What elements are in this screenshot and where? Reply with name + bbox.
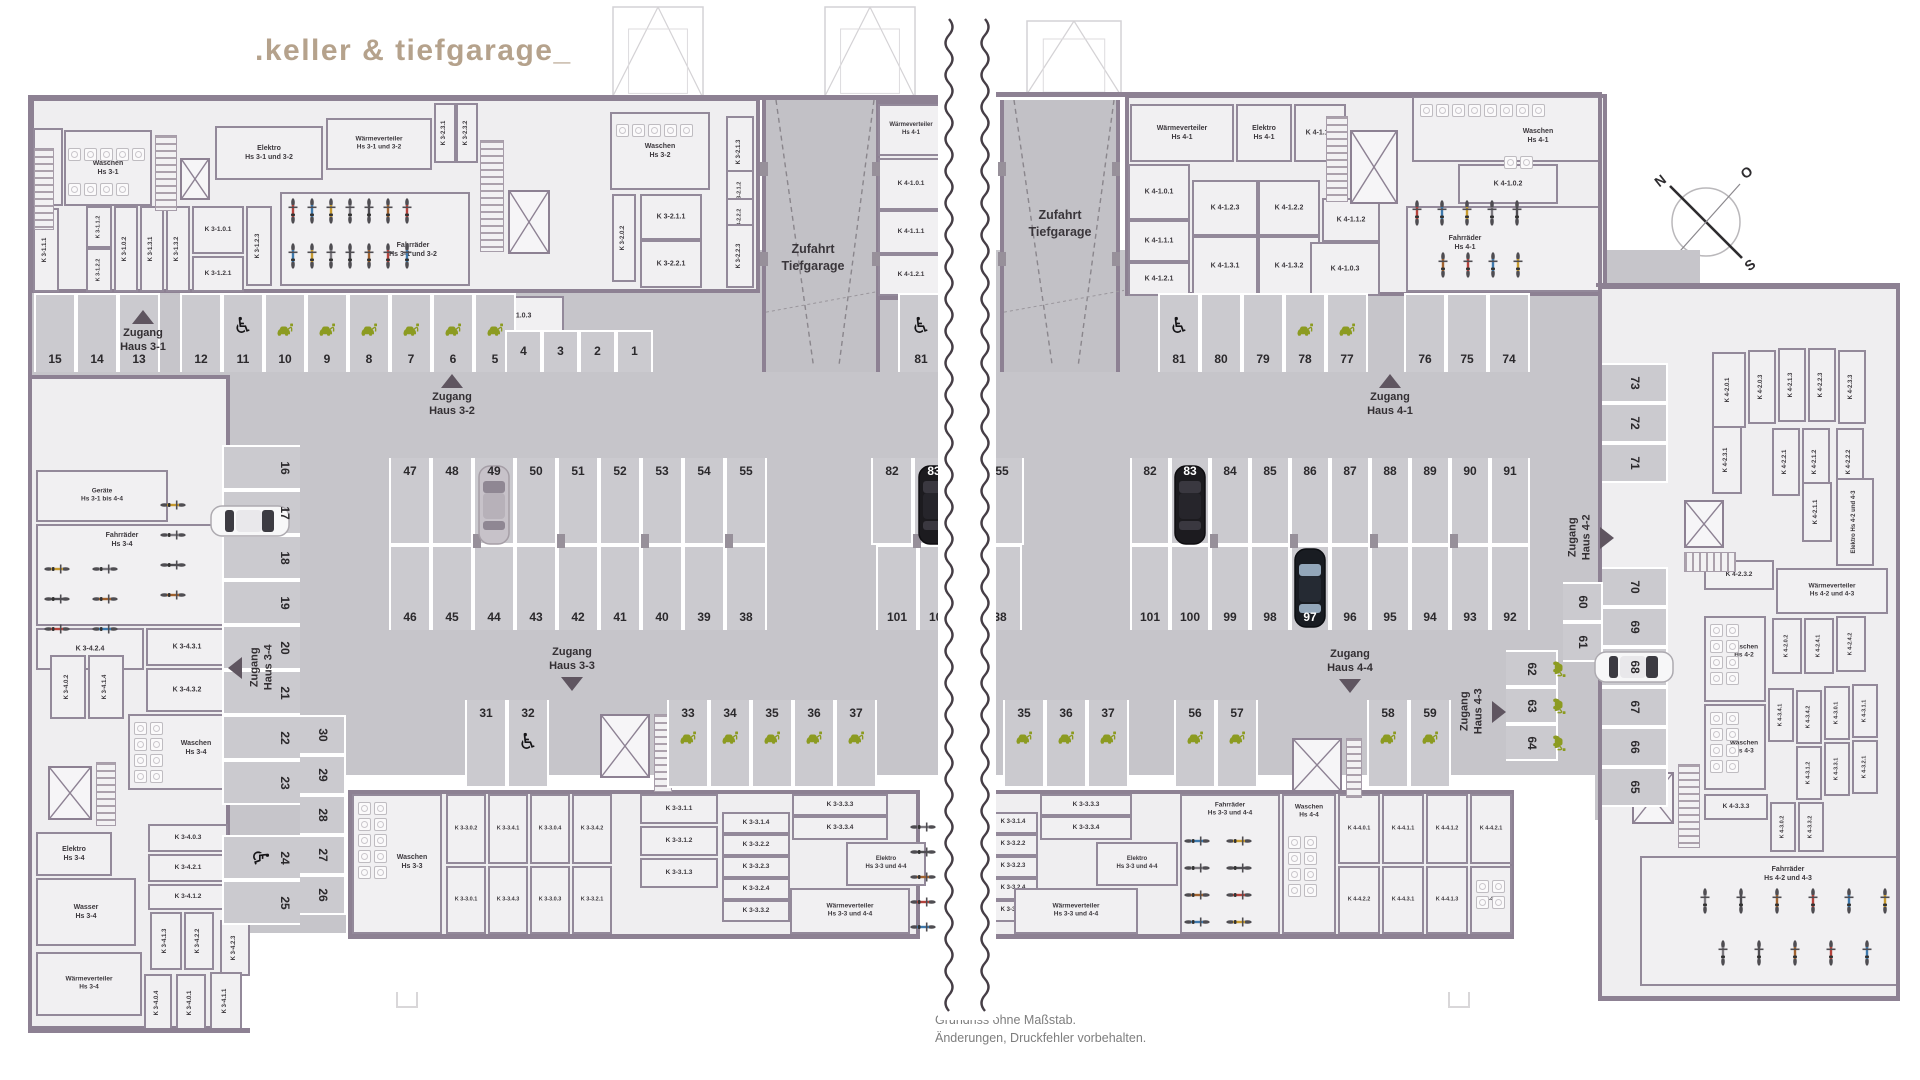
spot-number: 43 bbox=[529, 610, 542, 624]
room-label: K 4-2.0.1 bbox=[1725, 378, 1733, 403]
ev-car-shape bbox=[678, 731, 698, 747]
bicycle-shape bbox=[1226, 890, 1252, 900]
room-label: K 3-1.3.1 bbox=[148, 237, 156, 262]
room-label: K 3-4.2.2 bbox=[195, 929, 203, 954]
washing-machine-icon bbox=[116, 183, 129, 196]
bicycle-icon bbox=[1844, 888, 1854, 914]
spot-number: 52 bbox=[613, 464, 626, 478]
room-label: K 3-2.0.2 bbox=[620, 226, 628, 251]
room-label: K 4-1.0.1 bbox=[1145, 187, 1174, 196]
spot-number: 47 bbox=[403, 464, 416, 478]
spot-number: 28 bbox=[316, 808, 330, 821]
bicycle-shape bbox=[1488, 252, 1498, 278]
elevator-x-lines bbox=[50, 768, 90, 818]
washing-machine-icon bbox=[1726, 712, 1739, 725]
spot-number: 67 bbox=[1628, 700, 1642, 713]
spot-number: 29 bbox=[316, 768, 330, 781]
room-label: K 4-1.2.3 bbox=[1211, 203, 1240, 212]
bicycle-icon bbox=[1226, 836, 1252, 846]
room-label: K 4-3.4.1 bbox=[1777, 704, 1784, 727]
spot-number: 15 bbox=[48, 352, 61, 366]
room-label: K 3-2.3.2 bbox=[463, 121, 471, 146]
washing-machine-icon bbox=[150, 770, 163, 783]
bicycle-icon bbox=[92, 564, 118, 574]
bicycle-shape bbox=[1826, 940, 1836, 966]
elevator-x-lines bbox=[602, 716, 648, 776]
bicycle-icon bbox=[1754, 940, 1764, 966]
washing-machine-icon bbox=[1726, 744, 1739, 757]
room-label: K 4-4.3.1 bbox=[1392, 896, 1415, 903]
room-label: K 3-2.1.1 bbox=[657, 212, 686, 221]
pillar bbox=[1112, 162, 1120, 176]
bicycle-icon bbox=[1437, 200, 1447, 226]
ev-car-shape bbox=[1185, 731, 1205, 747]
bicycle-shape bbox=[288, 243, 298, 269]
bicycle-shape bbox=[402, 243, 412, 269]
ev-charging-car-icon bbox=[678, 731, 698, 747]
room-label: K 4-2.4.1 bbox=[1815, 635, 1822, 658]
bicycle-icon bbox=[364, 198, 374, 224]
bicycle-shape bbox=[364, 198, 374, 224]
washing-machine-icon bbox=[1726, 760, 1739, 773]
spot-number: 64 bbox=[1525, 736, 1539, 749]
washing-machine-icon bbox=[1452, 104, 1465, 117]
room-label: Elektro Hs 3-3 und 4-4 bbox=[1116, 856, 1157, 872]
bicycle-shape bbox=[326, 198, 336, 224]
washing-machine-icon bbox=[632, 124, 645, 137]
washing-machine-icon bbox=[358, 866, 371, 879]
washing-machine-icon bbox=[1710, 624, 1723, 637]
room-label: K 4-3.3.2 bbox=[1807, 816, 1814, 839]
ev-charging-car-icon bbox=[1550, 696, 1566, 716]
spot-number: 10 bbox=[278, 352, 291, 366]
spot-number: 17 bbox=[278, 506, 292, 519]
spot-number: 31 bbox=[479, 706, 492, 720]
bicycle-icon bbox=[326, 243, 336, 269]
room-label: K 3-4.2.4 bbox=[76, 644, 105, 653]
entrance-arrow-icon bbox=[1379, 374, 1401, 388]
spot-number: 23 bbox=[278, 776, 292, 789]
bicycle-icon bbox=[1513, 252, 1523, 278]
ev-car-shape bbox=[720, 731, 740, 747]
stairs-icon bbox=[1326, 116, 1348, 202]
elevator-icon bbox=[508, 190, 550, 254]
room-label: K 4-1.2.1 bbox=[1145, 274, 1174, 283]
room-label: K 4-2.0.2 bbox=[1783, 635, 1790, 658]
room-label: K 3-2.1.3 bbox=[736, 140, 744, 165]
bicycle-icon bbox=[1226, 917, 1252, 927]
spot-number: 82 bbox=[1143, 464, 1156, 478]
wheelchair-icon: ♿ bbox=[233, 316, 253, 338]
bicycle-icon bbox=[160, 530, 186, 540]
spot-number: 97 bbox=[1303, 610, 1316, 624]
bicycle-shape bbox=[160, 590, 186, 600]
spot-number: 3 bbox=[557, 344, 564, 358]
wall bbox=[28, 95, 946, 100]
door-outline-lines bbox=[824, 6, 916, 98]
room-label: K 3-1.2.3 bbox=[255, 234, 263, 259]
room-label: K 4-1.0.1 bbox=[898, 180, 925, 188]
washing-machine-icon bbox=[358, 834, 371, 847]
bicycle-icon bbox=[1184, 863, 1210, 873]
elevator-icon bbox=[1684, 500, 1724, 548]
room-label: K 3-3.3.4 bbox=[827, 824, 854, 832]
spot-number: 24 bbox=[278, 851, 292, 864]
spot-number: 79 bbox=[1256, 352, 1269, 366]
spot-number: 62 bbox=[1525, 662, 1539, 675]
spot-number: 57 bbox=[1230, 706, 1243, 720]
washing-machine-icon bbox=[84, 183, 97, 196]
washing-machine-icon bbox=[1288, 836, 1301, 849]
bicycle-icon bbox=[1462, 200, 1472, 226]
bicycle-icon bbox=[910, 872, 936, 882]
washing-machine-icon bbox=[1710, 656, 1723, 669]
room-label: K 3-3.1.1 bbox=[666, 805, 693, 813]
pillar bbox=[998, 162, 1006, 176]
washing-machine-icon bbox=[1420, 104, 1433, 117]
bicycle-icon bbox=[1226, 890, 1252, 900]
ev-car-shape bbox=[762, 731, 782, 747]
room-label: K 3-4.1.4 bbox=[102, 675, 110, 700]
bicycle-shape bbox=[364, 243, 374, 269]
room-label: K 4-1.2.2 bbox=[1275, 203, 1304, 212]
bicycle-shape bbox=[1808, 888, 1818, 914]
room-label: K 4-2.1.3 bbox=[1788, 373, 1796, 398]
bicycle-shape bbox=[1412, 200, 1422, 226]
room-label: K 3-1.3.2 bbox=[174, 237, 182, 262]
compass-n: N bbox=[1651, 171, 1669, 190]
room-label: K 3-1.2.2 bbox=[95, 259, 102, 282]
ev-charging-car-icon bbox=[485, 323, 505, 339]
entrance-arrow-icon bbox=[132, 310, 154, 324]
bicycle-shape bbox=[1754, 940, 1764, 966]
bicycle-icon bbox=[383, 243, 393, 269]
room-label: Fahrräder Hs 4-1 bbox=[1449, 234, 1482, 252]
washing-machine-icon bbox=[100, 183, 113, 196]
bicycle-shape bbox=[345, 243, 355, 269]
bicycle-shape bbox=[910, 822, 936, 832]
elevator-icon bbox=[1350, 130, 1398, 204]
bicycle-shape bbox=[44, 594, 70, 604]
compass-o: O bbox=[1737, 163, 1756, 182]
room-label: K 3-3.1.2 bbox=[666, 837, 693, 845]
spot-number: 50 bbox=[529, 464, 542, 478]
bicycle-shape bbox=[1772, 888, 1782, 914]
room-label: K 4-4.0.1 bbox=[1348, 825, 1371, 832]
room-label: K 3-3.4.2 bbox=[581, 825, 604, 832]
spot-number: 36 bbox=[807, 706, 820, 720]
room-label: Waschen Hs 3-1 bbox=[93, 159, 123, 177]
washing-machine-icon bbox=[1304, 852, 1317, 865]
spot-number: 18 bbox=[278, 551, 292, 564]
bicycle-icon bbox=[1438, 252, 1448, 278]
room-label: Geräte Hs 3-1 bis 4-4 bbox=[81, 488, 123, 505]
room-label: K 3-4.1.2 bbox=[175, 893, 202, 901]
room-label: Wärmeverteiler Hs 3-3 und 4-4 bbox=[827, 903, 874, 920]
bicycle-icon bbox=[44, 624, 70, 634]
washing-machine-icon bbox=[1726, 728, 1739, 741]
ev-car-shape bbox=[401, 323, 421, 339]
bicycle-icon bbox=[307, 243, 317, 269]
room-label: K 3-3.4.1 bbox=[497, 825, 520, 832]
spot-number: 6 bbox=[450, 352, 457, 366]
stairs-icon bbox=[1678, 764, 1700, 848]
room-label: K 4-2.1.1 bbox=[1813, 500, 1821, 525]
washing-machine-icon bbox=[1520, 156, 1533, 169]
bicycle-icon bbox=[1412, 200, 1422, 226]
stairs-icon bbox=[480, 140, 504, 252]
wall bbox=[1896, 283, 1900, 1001]
room-label: K 4-1.0.2 bbox=[1494, 179, 1523, 188]
bicycle-shape bbox=[383, 198, 393, 224]
floor-plan-canvas: .keller & tiefgarage_ N O S W Grundriss … bbox=[0, 0, 1920, 1080]
bicycle-shape bbox=[1184, 863, 1210, 873]
pillar bbox=[725, 534, 733, 548]
spot-number: 65 bbox=[1628, 780, 1642, 793]
spot-number: 11 bbox=[237, 352, 250, 366]
spot-number: 74 bbox=[1502, 352, 1515, 366]
pillar bbox=[1210, 534, 1218, 548]
bicycle-icon bbox=[1184, 890, 1210, 900]
ev-car-shape bbox=[1098, 731, 1118, 747]
washing-machine-icon bbox=[1288, 868, 1301, 881]
ev-charging-car-icon bbox=[401, 323, 421, 339]
room-label: K 3-3.0.4 bbox=[539, 825, 562, 832]
spot-number: 101 bbox=[887, 610, 907, 624]
bicycle-shape bbox=[160, 560, 186, 570]
ev-car-shape bbox=[485, 323, 505, 339]
registration-mark bbox=[1448, 992, 1470, 1008]
washing-machine-icon bbox=[1532, 104, 1545, 117]
bicycle-icon bbox=[402, 243, 412, 269]
wall bbox=[1598, 996, 1900, 1001]
room-label: K 3-2.2.1 bbox=[657, 259, 686, 268]
elevator-icon bbox=[180, 158, 210, 200]
spot-number: 90 bbox=[1463, 464, 1476, 478]
room-label: K 4-1.3.2 bbox=[1275, 261, 1304, 270]
room-label: Elektro Hs 3-3 und 4-4 bbox=[865, 856, 906, 872]
bicycle-icon bbox=[1184, 836, 1210, 846]
bicycle-shape bbox=[1718, 940, 1728, 966]
bicycle-icon bbox=[288, 243, 298, 269]
room-label: K 3-4.0.3 bbox=[175, 834, 202, 842]
bicycle-shape bbox=[1463, 252, 1473, 278]
spot-number: 73 bbox=[1628, 376, 1642, 389]
room-label: K 3-4.0.1 bbox=[187, 991, 195, 1016]
bicycle-shape bbox=[345, 198, 355, 224]
elevator-x-lines bbox=[1686, 502, 1722, 546]
room-label: Waschen Hs 3-4 bbox=[181, 739, 211, 757]
bicycle-icon bbox=[910, 897, 936, 907]
bicycle-shape bbox=[1736, 888, 1746, 914]
spot-number: 55 bbox=[995, 464, 1008, 478]
spot-number: 61 bbox=[1576, 635, 1590, 648]
entrance-arrow-icon bbox=[1339, 679, 1361, 693]
room-label: K 4-4.1.1 bbox=[1392, 825, 1415, 832]
room-label: K 3-1.1.1 bbox=[42, 238, 50, 263]
bicycle-icon bbox=[160, 500, 186, 510]
spot-number: 92 bbox=[1503, 610, 1516, 624]
bicycle-shape bbox=[288, 198, 298, 224]
bicycle-icon bbox=[1184, 917, 1210, 927]
room-label: Wärmeverteiler Hs 3-4 bbox=[66, 976, 113, 993]
garage-ramp bbox=[762, 100, 880, 372]
zugang-label: Zugang Haus 3-3 bbox=[549, 645, 595, 674]
ev-charging-car-icon bbox=[762, 731, 782, 747]
room-label: Wärmeverteiler Hs 4-2 und 4-3 bbox=[1809, 583, 1856, 600]
bicycle-shape bbox=[1438, 252, 1448, 278]
spot-number: 21 bbox=[278, 686, 292, 699]
washing-machine-icon bbox=[374, 802, 387, 815]
zufahrt-label: Zufahrt Tiefgarage bbox=[782, 241, 845, 275]
room-label: Elektro Hs 4-2 und 4-3 bbox=[1851, 490, 1859, 553]
room-label: K 3-4.3.1 bbox=[173, 642, 202, 651]
washing-machine-icon bbox=[1504, 156, 1517, 169]
room-label: K 3-2.3.1 bbox=[441, 121, 449, 146]
bicycle-shape bbox=[1184, 836, 1210, 846]
bicycle-icon bbox=[364, 243, 374, 269]
room-label: K 4-4.2.1 bbox=[1480, 825, 1503, 832]
door-outline-lines bbox=[1026, 20, 1122, 96]
entrance-arrow-icon bbox=[1600, 527, 1614, 549]
spot-number: 19 bbox=[278, 596, 292, 609]
room-label: K 4-3.1.2 bbox=[1805, 762, 1812, 785]
bicycle-shape bbox=[1880, 888, 1890, 914]
washing-machine-icon bbox=[1710, 744, 1723, 757]
washing-machine-icon bbox=[1436, 104, 1449, 117]
room-label: Elektro Hs 3-1 und 3-2 bbox=[245, 144, 293, 162]
room-label: K 3-1.0.1 bbox=[205, 226, 232, 234]
ev-charging-car-icon bbox=[846, 731, 866, 747]
spot-number: 84 bbox=[1223, 464, 1236, 478]
stairs-icon bbox=[34, 148, 54, 230]
spot-number: 33 bbox=[681, 706, 694, 720]
disclaimer-line-2: Änderungen, Druckfehler vorbehalten. bbox=[935, 1030, 1146, 1048]
door-outline-lines bbox=[612, 6, 704, 98]
washing-machine-icon bbox=[664, 124, 677, 137]
spot-number: 76 bbox=[1418, 352, 1431, 366]
bicycle-icon bbox=[44, 564, 70, 574]
room-label: K 3-4.3.2 bbox=[173, 685, 202, 694]
washing-machine-icon bbox=[1726, 640, 1739, 653]
spot-number: 32 bbox=[521, 706, 534, 720]
washing-machine-icon bbox=[358, 802, 371, 815]
spot-number: 25 bbox=[278, 896, 292, 909]
washing-machine-icon bbox=[68, 148, 81, 161]
room-label: Fahrräder Hs 4-2 und 4-3 bbox=[1764, 865, 1812, 883]
room-label: Elektro Hs 4-1 bbox=[1252, 124, 1276, 142]
spot-number: 59 bbox=[1423, 706, 1436, 720]
spot-number: 36 bbox=[1059, 706, 1072, 720]
bicycle-shape bbox=[1862, 940, 1872, 966]
ev-charging-car-icon bbox=[1014, 731, 1034, 747]
wall bbox=[1598, 95, 1602, 295]
zugang-label: Zugang Haus 3-4 bbox=[248, 644, 277, 690]
ev-car-shape bbox=[804, 731, 824, 747]
spot-number: 85 bbox=[1263, 464, 1276, 478]
spot-number: 1 bbox=[631, 344, 638, 358]
spot-number: 60 bbox=[1576, 595, 1590, 608]
room-label: K 3-4.1.3 bbox=[162, 929, 170, 954]
spot-number: 53 bbox=[655, 464, 668, 478]
spot-number: 49 bbox=[487, 464, 500, 478]
washing-machine-icon bbox=[374, 850, 387, 863]
spot-number: 16 bbox=[278, 461, 292, 474]
bicycle-icon bbox=[1862, 940, 1872, 966]
ev-charging-car-icon bbox=[359, 323, 379, 339]
bicycle-icon bbox=[910, 922, 936, 932]
room-label: K 3-3.0.2 bbox=[455, 825, 478, 832]
wall bbox=[348, 934, 920, 939]
spot-number: 66 bbox=[1628, 740, 1642, 753]
entrance-arrow-icon bbox=[561, 677, 583, 691]
bicycle-icon bbox=[44, 594, 70, 604]
washing-machine-icon bbox=[1710, 712, 1723, 725]
wall bbox=[950, 934, 1514, 939]
bicycle-shape bbox=[1487, 200, 1497, 226]
spot-number: 7 bbox=[408, 352, 415, 366]
room-label: K 4-3.0.2 bbox=[1779, 816, 1786, 839]
ev-car-shape bbox=[275, 323, 295, 339]
ramp-guide-lines bbox=[766, 100, 884, 372]
washing-machine-icon bbox=[358, 818, 371, 831]
room-label: K 4-3.3.3 bbox=[1723, 803, 1750, 811]
ev-car-shape bbox=[1550, 659, 1566, 679]
spot-number: 30 bbox=[316, 728, 330, 741]
spot-number: 5 bbox=[492, 352, 499, 366]
bicycle-icon bbox=[1790, 940, 1800, 966]
bicycle-shape bbox=[44, 624, 70, 634]
room-label: K 4-2.2.1 bbox=[1782, 450, 1790, 475]
bicycle-shape bbox=[1226, 836, 1252, 846]
room-label: Wärmeverteiler Hs 3-1 und 3-2 bbox=[356, 136, 403, 153]
pillar bbox=[760, 252, 768, 266]
washing-machine-icon bbox=[680, 124, 693, 137]
stairs-icon bbox=[1346, 738, 1362, 798]
spot-number: 72 bbox=[1628, 416, 1642, 429]
washing-machine-icon bbox=[648, 124, 661, 137]
ev-charging-car-icon bbox=[1056, 731, 1076, 747]
wheelchair-icon: ♿ bbox=[248, 848, 270, 868]
bicycle-icon bbox=[1463, 252, 1473, 278]
room-label: K 4-4.2.2 bbox=[1348, 896, 1371, 903]
spot-number: 2 bbox=[594, 344, 601, 358]
room-label: Fahrräder Hs 3-1 und 3-2 bbox=[389, 241, 437, 259]
garage-door-outline bbox=[612, 6, 704, 98]
washing-machine-icon bbox=[1304, 868, 1317, 881]
spot-number: 14 bbox=[90, 352, 103, 366]
bicycle-icon bbox=[1226, 863, 1252, 873]
ev-charging-car-icon bbox=[317, 323, 337, 339]
room-label: K 3-3.1.3 bbox=[666, 869, 693, 877]
washing-machine-icon bbox=[1710, 640, 1723, 653]
room-label: Elektro Hs 3-4 bbox=[62, 845, 86, 863]
elevator-icon bbox=[48, 766, 92, 820]
spot-number: 95 bbox=[1383, 610, 1396, 624]
zugang-label: Zugang Haus 4-2 bbox=[1566, 514, 1595, 560]
room-label: K 4-1.3.1 bbox=[1211, 261, 1240, 270]
room-label: K 3-3.2.1 bbox=[581, 896, 604, 903]
ev-charging-car-icon bbox=[1098, 731, 1118, 747]
room-label: K 4-3.0.1 bbox=[1833, 702, 1840, 725]
spot-number: 98 bbox=[1263, 610, 1276, 624]
bicycle-icon bbox=[92, 594, 118, 604]
washing-machine-icon bbox=[1476, 880, 1489, 893]
spot-number: 101 bbox=[1140, 610, 1160, 624]
elevator-x-lines bbox=[1352, 132, 1396, 202]
room-label: K 3-3.0.1 bbox=[455, 896, 478, 903]
spot-number: 93 bbox=[1463, 610, 1476, 624]
